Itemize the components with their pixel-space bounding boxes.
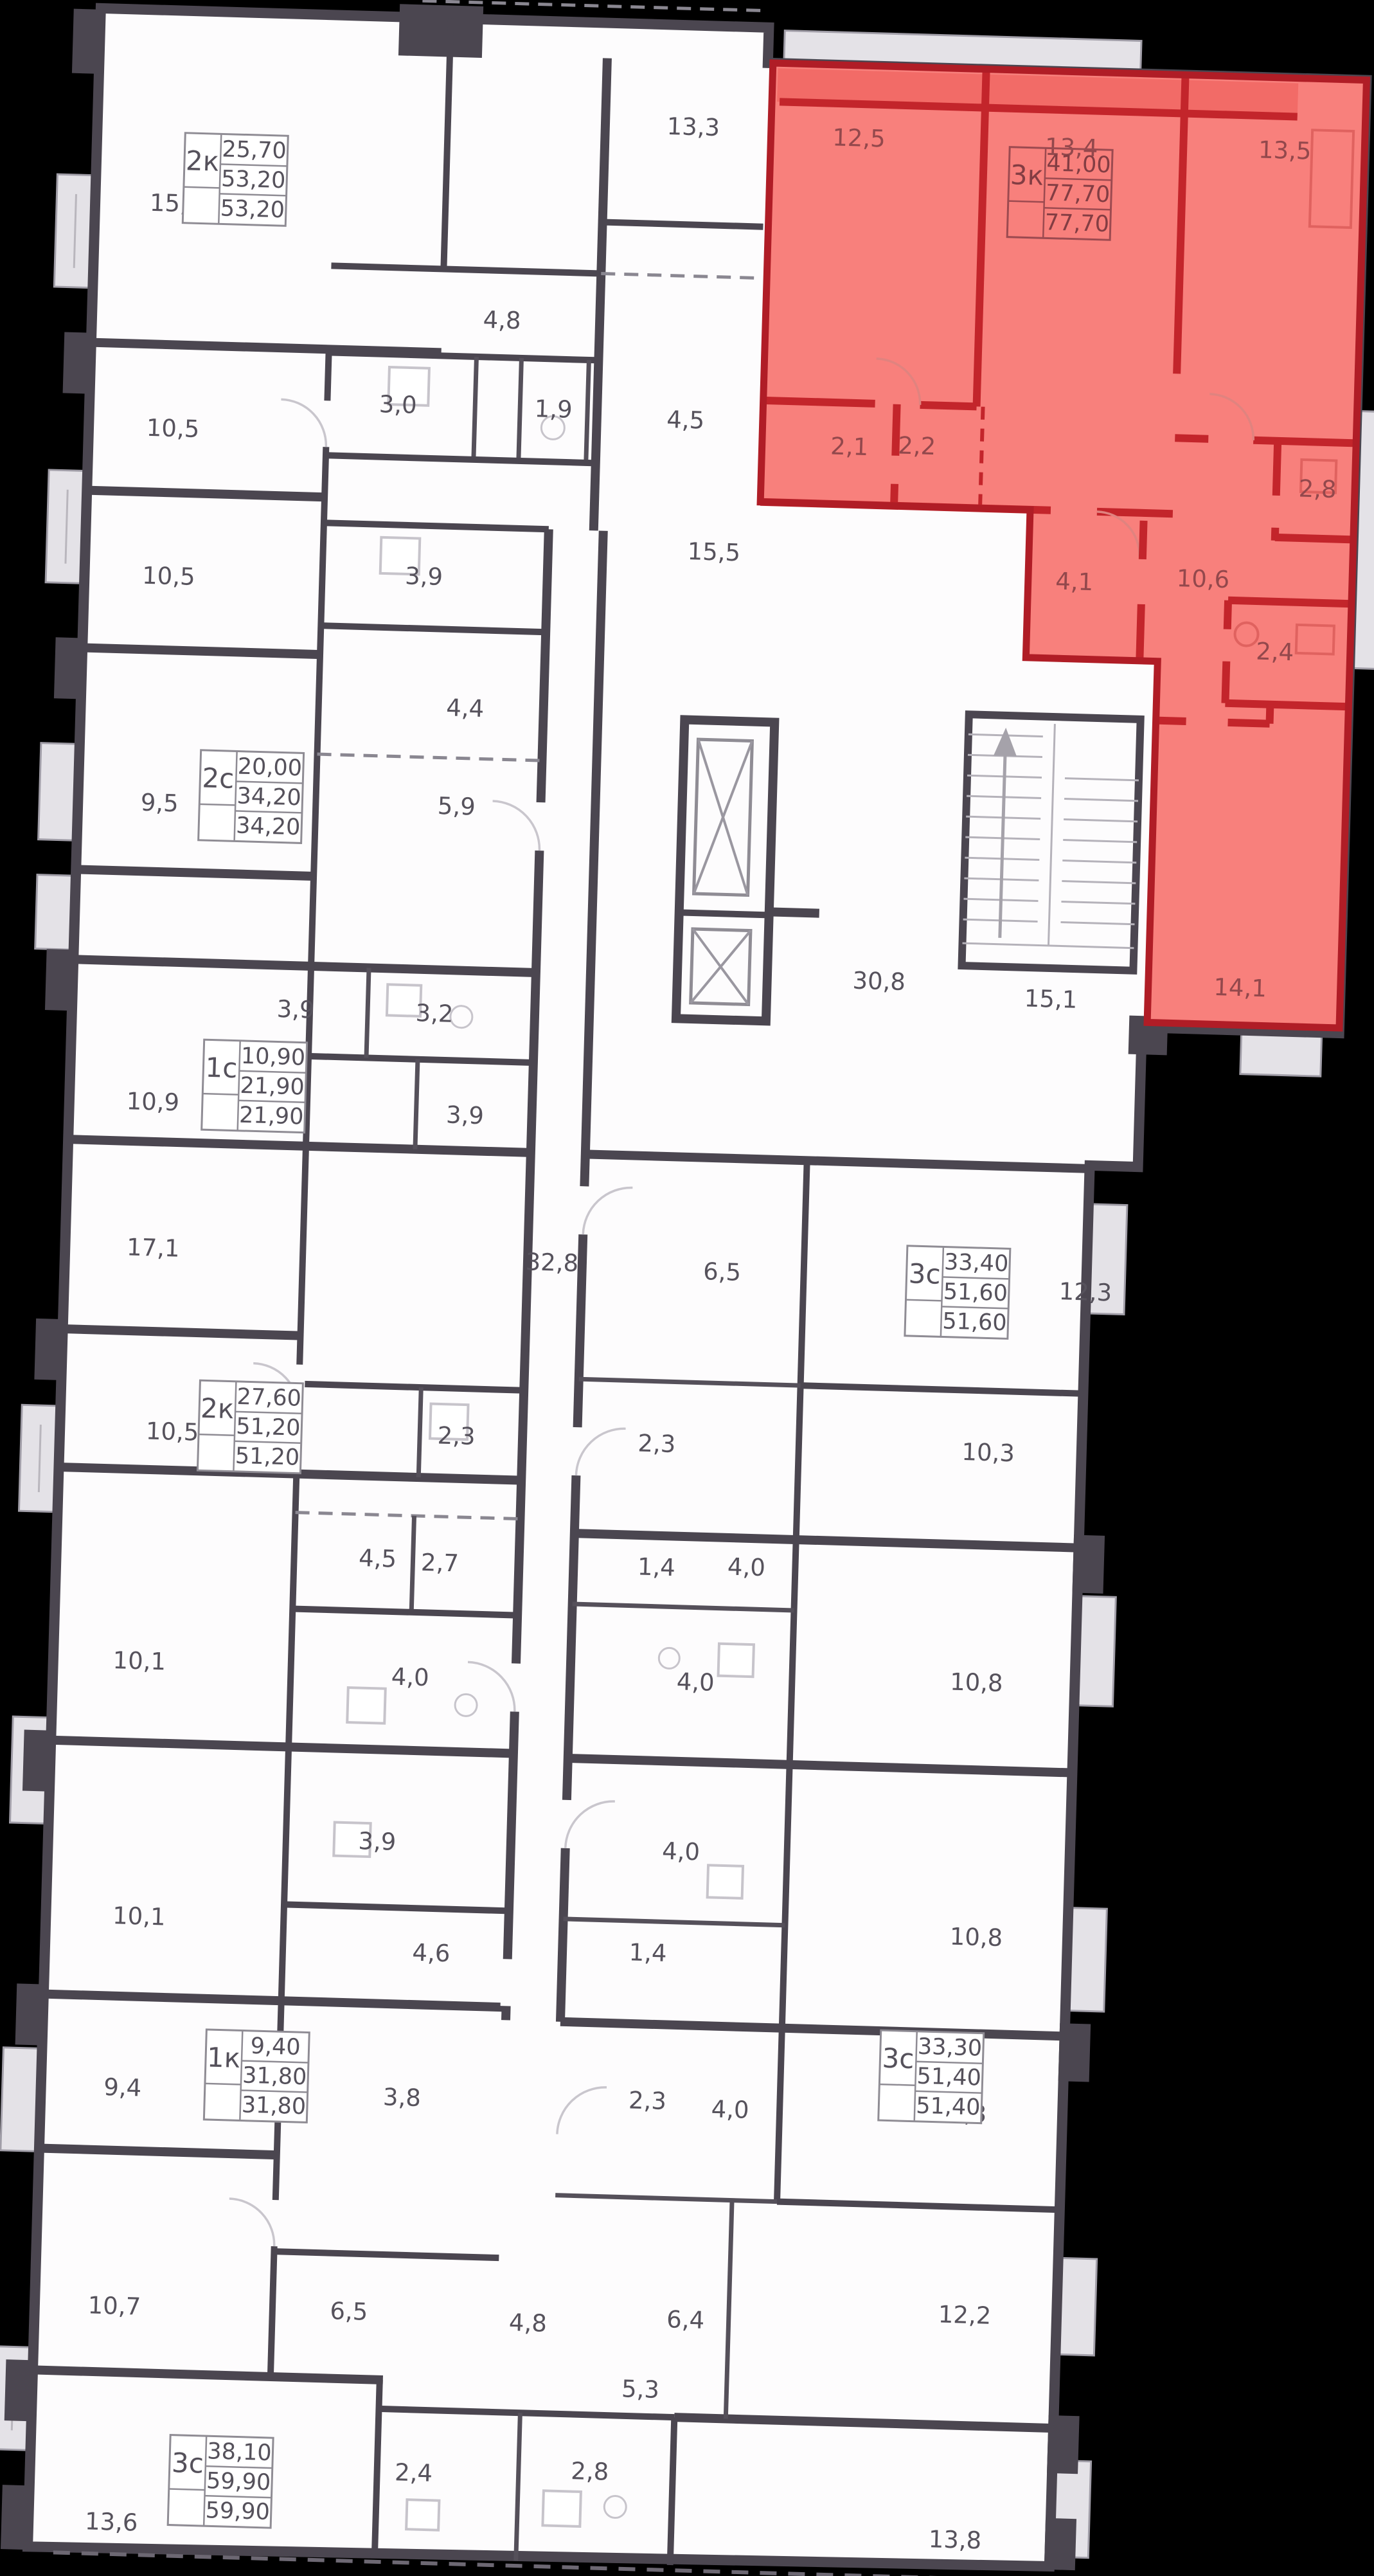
room-area-label: 4,0	[391, 1662, 429, 1691]
stairwell	[962, 714, 1141, 971]
room-area-label: 10,8	[949, 1923, 1003, 1952]
room-area-label: 4,5	[666, 406, 705, 435]
room-area-label: 12,2	[938, 2300, 992, 2329]
apartment-type: 3с	[908, 1257, 941, 1290]
room-area-label: 10,3	[961, 1438, 1015, 1467]
svg-text:21,90: 21,90	[240, 1073, 305, 1101]
svg-text:41,00: 41,00	[1046, 150, 1111, 178]
room-area-label: 4,8	[508, 2309, 547, 2337]
room-area-label: 6,5	[703, 1257, 742, 1286]
room-area-label: 4,5	[359, 1544, 397, 1573]
apartment-type: 3с	[171, 2447, 204, 2479]
svg-text:51,40: 51,40	[916, 2064, 981, 2091]
room-area-label: 10,7	[87, 2291, 141, 2320]
svg-text:53,20: 53,20	[220, 195, 285, 223]
svg-text:21,90: 21,90	[239, 1103, 304, 1130]
room-area-label: 15,1	[1024, 984, 1078, 1013]
room-area-label: 10,5	[145, 1417, 199, 1446]
room-area-label: 13,8	[928, 2525, 982, 2554]
room-area-label: 10,8	[950, 1668, 1004, 1697]
apartment-table-3s-599: 3с 38,10 59,90 59,90	[168, 2435, 273, 2528]
svg-text:51,20: 51,20	[236, 1414, 301, 1441]
room-area-label: 4,8	[483, 306, 521, 335]
svg-text:38,10: 38,10	[207, 2438, 272, 2466]
room-area-label: 6,5	[330, 2297, 368, 2326]
room-area-label: 9,4	[103, 2073, 142, 2102]
room-area-label: 10,1	[112, 1646, 166, 1675]
room-area-label: 3,9	[276, 995, 315, 1024]
svg-text:59,90: 59,90	[205, 2498, 270, 2525]
room-area-label: 3,0	[379, 390, 417, 419]
svg-text:51,60: 51,60	[943, 1279, 1008, 1306]
room-area-label: 3,9	[358, 1827, 397, 1856]
room-area-label: 1,9	[534, 395, 573, 424]
svg-text:9,40: 9,40	[250, 2033, 301, 2060]
room-area-label: 2,3	[628, 2086, 666, 2115]
room-area-label: 10,5	[142, 562, 196, 591]
apartment-type: 3к	[1010, 159, 1044, 191]
room-area-label: 10,9	[126, 1087, 180, 1116]
apartment-type: 1с	[205, 1052, 238, 1084]
room-area-label: 2,1	[830, 432, 869, 461]
room-area-label: 9,5	[140, 789, 179, 818]
apartment-type: 3с	[882, 2042, 915, 2075]
svg-text:77,70: 77,70	[1044, 210, 1109, 237]
apartment-table-1k-31: 1к 9,40 31,80 31,80	[204, 2030, 309, 2123]
room-area-label: 2,3	[437, 1421, 476, 1450]
svg-text:53,20: 53,20	[221, 166, 286, 194]
svg-text:59,90: 59,90	[206, 2468, 271, 2496]
room-area-label: 2,4	[1256, 638, 1294, 667]
room-area-label: 1,4	[629, 1938, 667, 1967]
floor-plan-page: 15,210,510,59,510,917,110,510,110,19,410…	[0, 0, 1374, 2576]
svg-text:51,60: 51,60	[942, 1308, 1007, 1336]
apartment-table-2s-34: 2с 20,00 34,20 34,20	[199, 750, 304, 843]
room-area-label: 13,6	[84, 2507, 138, 2536]
room-area-label: 14,1	[1213, 973, 1267, 1002]
room-area-label: 12,3	[1058, 1277, 1112, 1306]
svg-text:51,40: 51,40	[916, 2093, 981, 2121]
apartment-table-2k-51: 2к 27,60 51,20 51,20	[197, 1380, 303, 1473]
room-area-label: 4,0	[727, 1553, 765, 1581]
svg-text:27,60: 27,60	[236, 1384, 301, 1412]
svg-text:31,80: 31,80	[242, 2063, 307, 2091]
room-area-label: 3,2	[415, 999, 454, 1028]
room-area-label: 13,5	[1258, 136, 1312, 165]
svg-text:25,70: 25,70	[222, 136, 287, 164]
svg-text:20,00: 20,00	[237, 754, 302, 782]
svg-text:51,20: 51,20	[235, 1443, 299, 1471]
svg-text:31,80: 31,80	[241, 2093, 306, 2120]
room-area-label: 30,8	[852, 967, 906, 996]
apartment-type: 2с	[202, 762, 235, 794]
room-area-label: 5,9	[437, 792, 476, 821]
room-area-label: 32,8	[525, 1248, 579, 1277]
room-area-label: 2,4	[395, 2458, 433, 2487]
svg-text:10,90: 10,90	[240, 1043, 305, 1071]
room-area-label: 17,1	[127, 1233, 181, 1262]
apartment-table-3s-514: 3с 33,30 51,40 51,40	[879, 2030, 984, 2123]
room-area-label: 3,8	[382, 2083, 421, 2112]
room-area-label: 4,1	[1055, 568, 1094, 597]
room-area-label: 2,8	[571, 2457, 609, 2486]
room-area-label: 4,0	[711, 2095, 749, 2124]
room-area-label: 2,2	[898, 431, 936, 460]
apartment-type: 1к	[206, 2041, 240, 2073]
room-area-label: 4,0	[676, 1668, 715, 1697]
room-area-label: 6,4	[666, 2305, 705, 2334]
room-area-label: 1,4	[637, 1553, 675, 1581]
floor-plan-canvas: 15,210,510,59,510,917,110,510,110,19,410…	[0, 0, 1374, 2576]
room-area-label: 10,5	[146, 414, 200, 443]
room-area-label: 4,0	[662, 1837, 700, 1866]
room-area-label: 5,3	[621, 2375, 660, 2404]
svg-text:34,20: 34,20	[236, 783, 301, 811]
svg-text:34,20: 34,20	[236, 813, 301, 840]
room-area-label: 2,7	[420, 1549, 459, 1578]
room-area-label: 2,3	[638, 1429, 676, 1458]
apartment-type: 2к	[200, 1392, 234, 1425]
apartment-table-1s-21: 1с 10,90 21,90 21,90	[202, 1040, 307, 1133]
room-area-label: 4,6	[412, 1939, 451, 1968]
apartment-table-3s-516: 3с 33,40 51,60 51,60	[905, 1246, 1010, 1339]
room-area-label: 3,9	[405, 562, 443, 591]
room-area-label: 13,3	[666, 113, 720, 141]
apartment-type: 2к	[185, 145, 219, 177]
room-area-label: 15,5	[687, 537, 741, 566]
room-area-label: 3,9	[445, 1101, 484, 1130]
svg-text:33,40: 33,40	[944, 1249, 1009, 1277]
svg-text:33,30: 33,30	[917, 2034, 982, 2062]
room-area-label: 4,4	[446, 694, 485, 723]
room-area-label: 10,1	[112, 1902, 166, 1931]
room-area-label: 10,6	[1176, 564, 1230, 593]
apartment-table-2k-53: 2к 25,70 53,20 53,20	[183, 133, 288, 226]
room-area-label: 2,8	[1298, 474, 1337, 503]
svg-text:77,70: 77,70	[1045, 180, 1110, 208]
room-area-label: 12,5	[832, 123, 886, 152]
